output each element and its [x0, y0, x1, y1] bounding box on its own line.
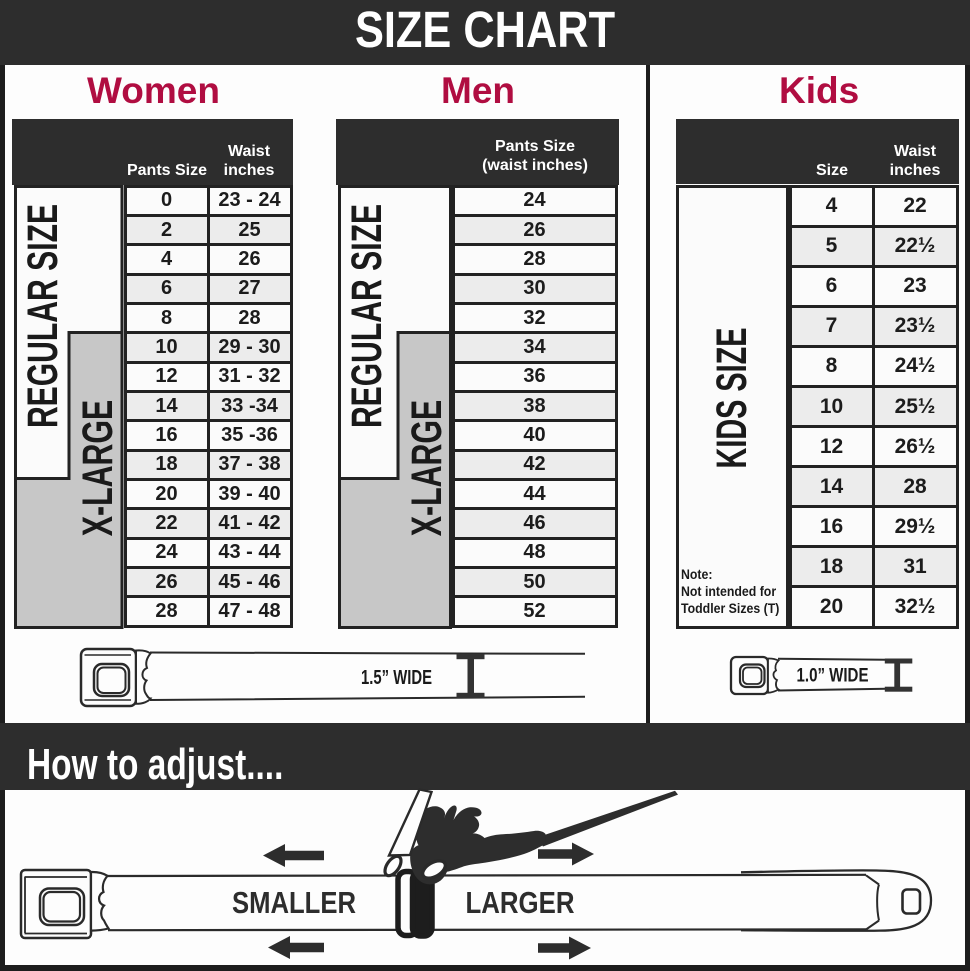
- svg-text:1.5” WIDE: 1.5” WIDE: [361, 667, 432, 689]
- svg-text:1.0” WIDE: 1.0” WIDE: [797, 666, 869, 687]
- svg-text:LARGER: LARGER: [466, 885, 575, 920]
- svg-text:SMALLER: SMALLER: [232, 885, 356, 920]
